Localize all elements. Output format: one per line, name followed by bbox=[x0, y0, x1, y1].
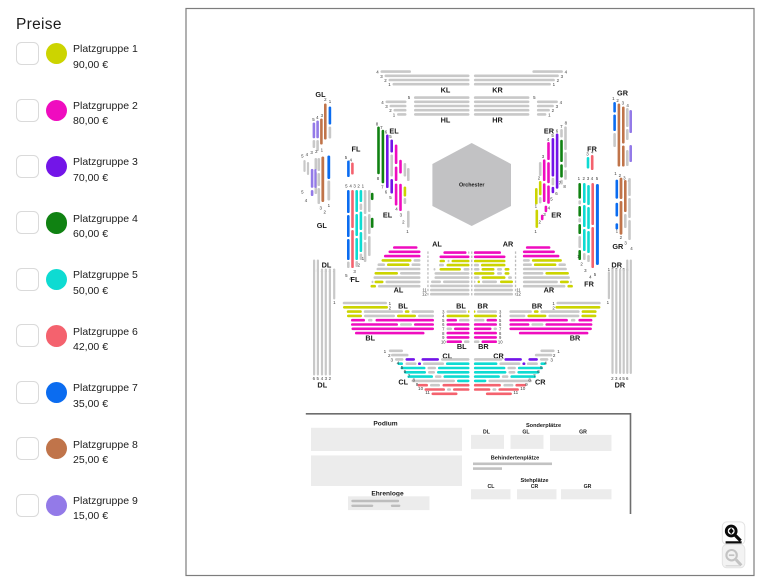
svg-text:4: 4 bbox=[397, 361, 400, 366]
svg-text:Podium: Podium bbox=[373, 421, 397, 428]
svg-text:BL: BL bbox=[457, 342, 467, 351]
svg-text:GR: GR bbox=[617, 89, 629, 98]
svg-text:BR: BR bbox=[478, 342, 489, 351]
svg-text:GL: GL bbox=[522, 430, 530, 436]
svg-text:DL: DL bbox=[483, 430, 491, 436]
svg-text:KL: KL bbox=[441, 85, 451, 94]
svg-text:6: 6 bbox=[404, 369, 407, 374]
svg-text:DR: DR bbox=[615, 381, 626, 390]
svg-text:GR: GR bbox=[612, 242, 624, 251]
svg-text:10: 10 bbox=[418, 386, 424, 391]
svg-text:8: 8 bbox=[528, 378, 531, 383]
svg-text:BR: BR bbox=[477, 302, 488, 311]
svg-text:9: 9 bbox=[525, 382, 528, 387]
svg-text:6: 6 bbox=[537, 369, 540, 374]
svg-text:12: 12 bbox=[516, 292, 521, 297]
svg-text:10: 10 bbox=[498, 339, 503, 344]
svg-text:11: 11 bbox=[513, 390, 518, 395]
svg-text:AL: AL bbox=[432, 240, 442, 249]
svg-text:Behindertenplätze: Behindertenplätze bbox=[491, 456, 540, 462]
svg-text:AL: AL bbox=[394, 285, 404, 294]
svg-text:AR: AR bbox=[544, 285, 555, 294]
svg-text:EL: EL bbox=[383, 211, 393, 220]
svg-text:GR: GR bbox=[579, 430, 587, 436]
svg-text:1: 1 bbox=[384, 349, 387, 354]
svg-text:Sonderplätze: Sonderplätze bbox=[526, 423, 561, 429]
svg-text:CL: CL bbox=[488, 484, 496, 490]
svg-text:7: 7 bbox=[408, 373, 411, 378]
svg-text:ER: ER bbox=[551, 211, 562, 220]
svg-text:BL: BL bbox=[456, 302, 466, 311]
svg-text:HR: HR bbox=[492, 116, 503, 125]
svg-text:4: 4 bbox=[544, 361, 547, 366]
svg-text:BL: BL bbox=[398, 302, 408, 311]
svg-text:Orchester: Orchester bbox=[459, 183, 485, 189]
svg-text:BR: BR bbox=[570, 333, 581, 342]
svg-text:BL: BL bbox=[365, 333, 375, 342]
svg-text:1: 1 bbox=[557, 349, 560, 354]
svg-text:10: 10 bbox=[520, 386, 526, 391]
svg-text:CR: CR bbox=[535, 378, 546, 387]
svg-text:DL: DL bbox=[317, 381, 327, 390]
svg-text:FL: FL bbox=[352, 145, 361, 154]
svg-text:5: 5 bbox=[540, 365, 543, 370]
svg-text:11: 11 bbox=[425, 390, 430, 395]
svg-text:CL: CL bbox=[398, 378, 408, 387]
svg-text:HL: HL bbox=[441, 116, 451, 125]
svg-text:AR: AR bbox=[503, 240, 514, 249]
svg-text:10: 10 bbox=[441, 339, 446, 344]
svg-text:BR: BR bbox=[532, 302, 543, 311]
svg-text:KR: KR bbox=[492, 85, 503, 94]
svg-text:FL: FL bbox=[351, 275, 360, 284]
svg-text:CR: CR bbox=[531, 484, 539, 490]
svg-text:GR: GR bbox=[584, 484, 592, 490]
svg-text:FR: FR bbox=[584, 280, 594, 289]
svg-text:GL: GL bbox=[317, 221, 328, 230]
svg-text:12: 12 bbox=[422, 292, 427, 297]
svg-text:3: 3 bbox=[391, 358, 394, 363]
svg-text:2: 2 bbox=[553, 353, 556, 358]
svg-text:3: 3 bbox=[550, 358, 553, 363]
